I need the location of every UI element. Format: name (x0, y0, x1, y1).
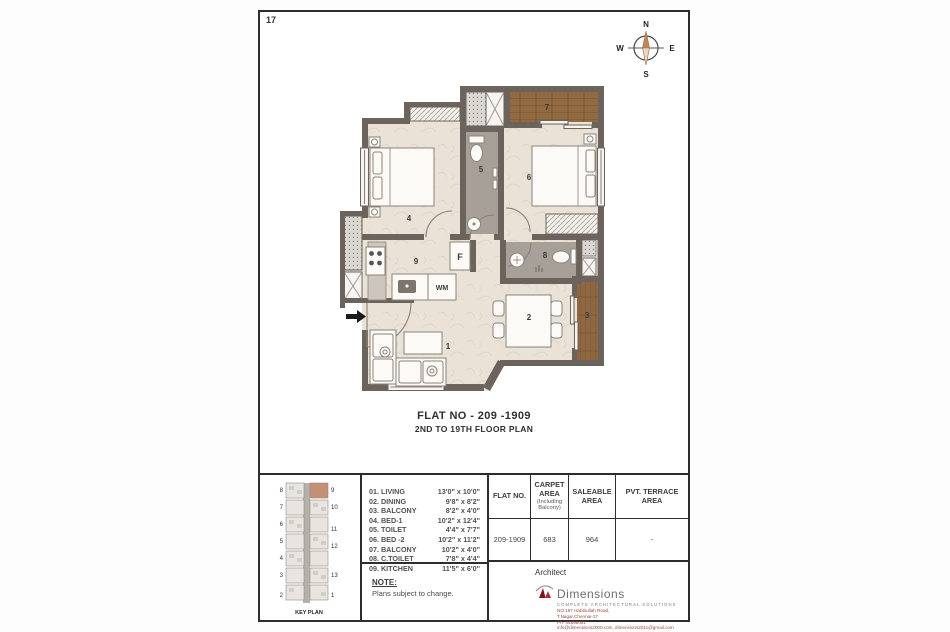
balcony-dining-floor (577, 282, 598, 360)
header-carpet-subtext: (Including Balcony) (533, 499, 566, 512)
sliding-door-balcony3 (571, 296, 575, 324)
header-terrace-text: PVT. TERRACE AREA (618, 488, 686, 504)
keyplan-unit-13: 13 (331, 573, 338, 579)
value-flat-no: 209-1909 (489, 519, 531, 560)
key-plan-drawing: 8 7 6 5 4 3 2 9 10 11 12 13 1 KEY P (260, 475, 358, 618)
area-table: FLAT NO. CARPET AREA(Including Balcony) … (489, 475, 688, 560)
compass-north-label: N (643, 20, 649, 29)
keyplan-caption: KEY PLAN (295, 610, 323, 616)
legend-row: 01. LIVING13'0" x 10'0" (369, 487, 480, 497)
legend-room-dim: 10'2" x 4'0" (442, 545, 480, 555)
key-plan-cell: 8 7 6 5 4 3 2 9 10 11 12 13 1 KEY P (260, 475, 362, 620)
architect-label: Architect (535, 568, 688, 577)
plan-title-block: FLAT NO - 209 -1909 2ND TO 19TH FLOOR PL… (260, 410, 688, 434)
shower-duct (466, 92, 486, 126)
floor-plan-page: 17 N S E W (0, 0, 950, 632)
legend-room-dim: 9'8" x 8'2" (446, 497, 480, 507)
bed1-furniture (369, 137, 434, 217)
sliding-door-balcony7 (540, 121, 568, 125)
legend-row: 03. BALCONY8'2" x 4'0" (369, 506, 480, 516)
keyplan-unit-9: 9 (331, 488, 335, 494)
architect-email: info@dimensions2000.com, dimensions2011@… (557, 625, 688, 631)
balcony-bed-floor (510, 92, 598, 122)
flat-number-title: FLAT NO - 209 -1909 (260, 410, 688, 422)
note-body: Plans subject to change. (372, 589, 477, 598)
legend-row: 07. BALCONY10'2" x 4'0" (369, 545, 480, 555)
floor-range-title: 2ND TO 19TH FLOOR PLAN (260, 424, 688, 434)
sliding-door-balcony3b (575, 322, 579, 350)
architect-tagline: COMPLETE ARCHITECTURAL SOLUTIONS (557, 602, 688, 607)
keyplan-unit-4: 4 (280, 556, 284, 562)
legend-room-name: 06. BED -2 (369, 535, 405, 545)
room-label-living: 1 (446, 342, 451, 351)
keyplan-unit-8: 8 (280, 488, 284, 494)
room-label-balcony-dining: 3 (585, 311, 590, 320)
legend-room-dim: 10'2" x 11'2" (438, 535, 480, 545)
legend-room-dim: 8'2" x 4'0" (446, 506, 480, 516)
header-flat-no: FLAT NO. (489, 475, 531, 519)
room-label-bed2: 6 (527, 173, 532, 182)
fridge-label: F (457, 252, 463, 262)
header-flat-no-text: FLAT NO. (493, 492, 526, 500)
keyplan-unit-11: 11 (331, 527, 338, 533)
keyplan-unit-7: 7 (280, 505, 284, 511)
sofa-set (370, 330, 446, 386)
legend-room-dim: 13'0" x 10'0" (438, 487, 480, 497)
legend-room-dim: 10'2" x 12'4" (438, 516, 480, 526)
value-saleable-area: 964 (569, 519, 616, 560)
drawing-frame: 17 N S E W (258, 10, 690, 622)
floor-plan-drawing: 1 2 3 4 5 6 7 8 9 F WM (338, 80, 630, 412)
wardrobe-bed2 (546, 214, 598, 234)
note-title: NOTE: (372, 578, 477, 587)
room-label-kitchen: 9 (414, 257, 419, 266)
header-carpet-area: CARPET AREA(Including Balcony) (531, 475, 569, 519)
legend-row: 02. DINING9'8" x 8'2" (369, 497, 480, 507)
compass-east-label: E (669, 44, 675, 53)
page-number: 17 (266, 15, 276, 25)
value-terrace-area: - (616, 519, 688, 560)
legend-room-name: 05. TOILET (369, 525, 406, 535)
legend-row: 06. BED -210'2" x 11'2" (369, 535, 480, 545)
keyplan-unit-12: 12 (331, 544, 338, 550)
header-carpet-text: CARPET AREA (533, 481, 566, 497)
value-carpet-area: 683 (531, 519, 569, 560)
legend-room-name: 03. BALCONY (369, 506, 417, 516)
keyplan-unit-3: 3 (280, 573, 284, 579)
legend-room-dim: 4'4" x 7'7" (446, 525, 480, 535)
legend-row: 05. TOILET4'4" x 7'7" (369, 525, 480, 535)
architect-logo-row: Dimensions (535, 584, 688, 601)
architect-brand: Dimensions (557, 587, 625, 601)
room-label-balcony-bed: 7 (545, 103, 550, 112)
duct-shaft (344, 216, 362, 270)
washing-machine-label: WM (436, 285, 449, 292)
keyplan-unit-1: 1 (331, 593, 335, 599)
legend-row: 04. BED-110'2" x 12'4" (369, 516, 480, 526)
room-label-toilet: 5 (479, 165, 484, 174)
room-label-bed1: 4 (407, 214, 412, 223)
legend-room-name: 04. BED-1 (369, 516, 403, 526)
legend-room-name: 01. LIVING (369, 487, 405, 497)
keyplan-unit-2: 2 (280, 593, 284, 599)
keyplan-unit-6: 6 (280, 522, 284, 528)
room-legend-list: 01. LIVING13'0" x 10'0" 02. DINING9'8" x… (362, 477, 487, 573)
architect-cell: Architect Dimensions COMPLETE ARCHITECTU… (489, 562, 688, 620)
header-saleable-text: SALEABLE AREA (571, 488, 613, 504)
compass-south-label: S (643, 70, 649, 79)
legend-room-name: 07. BALCONY (369, 545, 417, 555)
compass-rose-icon: N S E W (610, 16, 682, 80)
dimensions-logo-icon (535, 584, 555, 601)
keyplan-unit-10: 10 (331, 505, 338, 511)
utility-duct (582, 240, 596, 256)
legend-room-name: 02. DINING (369, 497, 406, 507)
sliding-door-balcony7b (564, 125, 592, 129)
compass-west-label: W (616, 44, 624, 53)
wardrobe-bed1 (410, 107, 460, 121)
area-table-cell: FLAT NO. CARPET AREA(Including Balcony) … (489, 475, 688, 562)
title-block-band: 8 7 6 5 4 3 2 9 10 11 12 13 1 KEY P (260, 473, 688, 620)
header-terrace-area: PVT. TERRACE AREA (616, 475, 688, 519)
room-label-c-toilet: 8 (543, 251, 548, 260)
note-cell: NOTE: Plans subject to change. (362, 562, 489, 620)
header-saleable-area: SALEABLE AREA (569, 475, 616, 519)
room-label-dining: 2 (527, 313, 532, 322)
room-legend-cell: 01. LIVING13'0" x 10'0" 02. DINING9'8" x… (362, 475, 489, 564)
keyplan-unit-5: 5 (280, 539, 284, 545)
